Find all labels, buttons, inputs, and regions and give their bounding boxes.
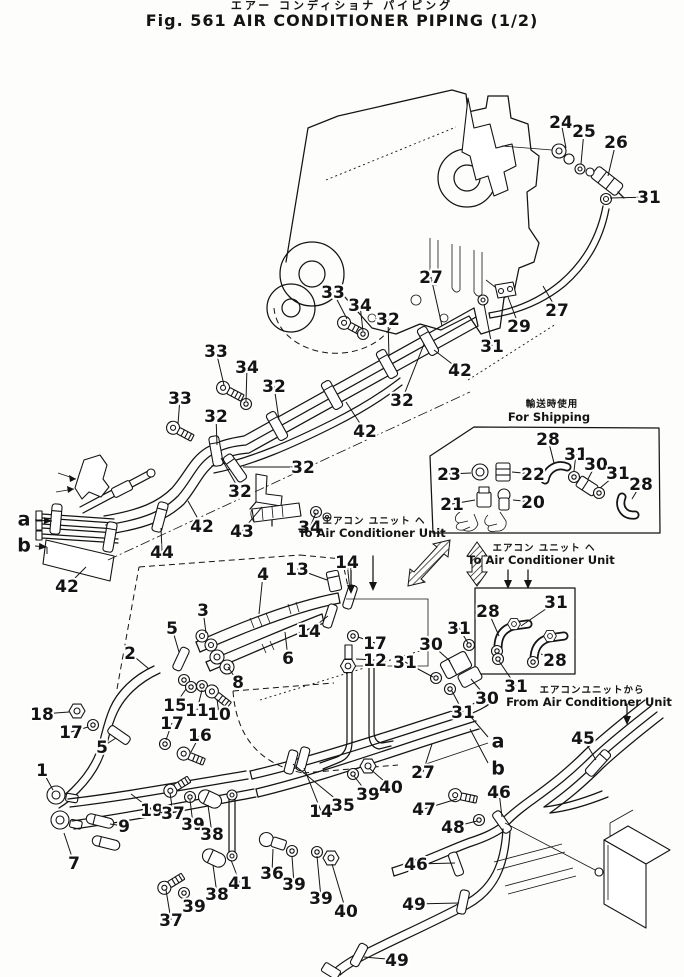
annotation-en: To Air Conditioner Unit xyxy=(298,526,446,540)
callout-30: 30 xyxy=(471,679,499,709)
part-number: 13 xyxy=(285,560,309,580)
part-number: 21 xyxy=(440,495,464,515)
part-number: 39 xyxy=(282,875,306,895)
callout-8: 8 xyxy=(228,667,244,693)
main-pipe-bundle-42 xyxy=(104,308,478,534)
part-number: 42 xyxy=(190,517,214,537)
callout-39: 39 xyxy=(354,776,380,805)
callout-40: 40 xyxy=(332,864,358,922)
annotation-jp: 輸送時使用 xyxy=(526,398,579,410)
part-number: 31 xyxy=(447,619,471,639)
callout-48: 48 xyxy=(441,818,477,838)
part-number: 10 xyxy=(207,705,231,725)
callout-1: 1 xyxy=(36,761,53,790)
part-number: 30 xyxy=(584,455,608,475)
callout-23: 23 xyxy=(437,465,471,485)
part-number: 28 xyxy=(476,602,500,622)
compressor-fittings-24-26 xyxy=(502,144,624,205)
part-number: 31 xyxy=(637,188,661,208)
part-number: 39 xyxy=(356,785,380,805)
callout-38: 38 xyxy=(205,865,229,905)
callout-25: 25 xyxy=(572,122,596,164)
part-number: 2 xyxy=(124,644,136,664)
part-number: 35 xyxy=(331,796,355,816)
machine-rod-part xyxy=(56,455,155,513)
part-number: 48 xyxy=(441,818,465,838)
part-number: 33 xyxy=(321,283,345,303)
callout-21: 21 xyxy=(440,495,475,515)
view-letter: a xyxy=(18,509,31,531)
part-number: 7 xyxy=(68,854,80,874)
part-number: 28 xyxy=(536,430,560,450)
callout-19: 19 xyxy=(131,794,164,821)
part-number: 38 xyxy=(205,885,229,905)
callout-17: 17 xyxy=(59,723,88,743)
callout-31: 31 xyxy=(393,653,433,677)
callout-38: 38 xyxy=(200,805,224,845)
callout-14: 14 xyxy=(297,616,328,642)
part-number: 27 xyxy=(419,268,443,288)
part-number: 9 xyxy=(118,817,130,837)
engine-block xyxy=(267,90,539,353)
part-number: 34 xyxy=(348,296,372,316)
part-number: 31 xyxy=(480,337,504,357)
callout-39: 39 xyxy=(282,856,306,895)
part-number: 3 xyxy=(197,601,209,621)
callout-43: 43 xyxy=(230,507,262,542)
part-number: 22 xyxy=(521,465,545,485)
callout-20: 20 xyxy=(513,493,545,513)
callout-5: 5 xyxy=(166,619,179,652)
annotation-en: For Shipping xyxy=(508,410,590,424)
part-number: 12 xyxy=(363,651,387,671)
part-number: 42 xyxy=(55,577,79,597)
part-number: 47 xyxy=(412,800,436,820)
callout-42: 42 xyxy=(434,350,472,381)
callout-42: 42 xyxy=(188,501,214,537)
pipe-2-and-elbows xyxy=(47,666,256,851)
callout-47: 47 xyxy=(412,799,457,820)
callout-2: 2 xyxy=(124,644,149,669)
part-number: 6 xyxy=(282,649,294,669)
part-number: 49 xyxy=(385,951,409,971)
part-number: 42 xyxy=(353,422,377,442)
part-number: 40 xyxy=(379,778,403,798)
callout-30: 30 xyxy=(419,635,450,661)
view-letter: b xyxy=(17,535,31,557)
parts-diagram-page: エアー コンディショナ パイピング Fig. 561 AIR CONDITION… xyxy=(0,0,684,977)
callout-49: 49 xyxy=(364,951,409,971)
callout-39: 39 xyxy=(182,897,206,917)
part-number: 14 xyxy=(335,553,359,573)
part-number: 32 xyxy=(390,391,414,411)
callout-22: 22 xyxy=(512,465,545,485)
fitting-cluster-center xyxy=(69,630,359,768)
callout-28: 28 xyxy=(476,602,500,636)
callout-30: 30 xyxy=(584,455,608,479)
part-number: 28 xyxy=(543,651,567,671)
part-number: 32 xyxy=(228,482,252,502)
callout-33: 33 xyxy=(168,389,192,424)
part-number: 33 xyxy=(204,342,228,362)
bracket-43 xyxy=(250,474,301,526)
part-number: 32 xyxy=(376,310,400,330)
part-number: 41 xyxy=(228,874,252,894)
figure-title: エアー コンディショナ パイピング Fig. 561 AIR CONDITION… xyxy=(0,0,684,29)
callout-27: 27 xyxy=(419,268,443,326)
part-number: 42 xyxy=(448,361,472,381)
annotation-en: From Air Conditioner Unit xyxy=(506,695,672,709)
callout-31: 31 xyxy=(499,661,528,697)
annotation-from-ac-unit: エアコンユニットからFrom Air Conditioner Unit xyxy=(506,685,672,709)
part-number: 40 xyxy=(334,902,358,922)
part-number: 5 xyxy=(96,738,108,758)
callout-13: 13 xyxy=(285,560,327,580)
part-number: 49 xyxy=(402,895,426,915)
callout-33: 33 xyxy=(204,342,228,385)
part-number: 23 xyxy=(437,465,461,485)
callout-18: 18 xyxy=(30,705,69,725)
callout-32: 32 xyxy=(390,344,424,411)
part-number: 17 xyxy=(160,714,184,734)
view-label-a: a xyxy=(18,509,52,531)
callout-42: 42 xyxy=(346,402,377,442)
part-number: 32 xyxy=(204,407,228,427)
part-number: 18 xyxy=(30,705,54,725)
part-number: 46 xyxy=(404,855,428,875)
part-number: 31 xyxy=(544,593,568,613)
view-letter: b xyxy=(491,758,505,780)
part-number: 1 xyxy=(36,761,48,781)
callout-31: 31 xyxy=(521,593,568,626)
callout-12: 12 xyxy=(356,651,387,671)
annotation-en: To Air Conditioner Unit xyxy=(467,553,615,567)
part-number: 20 xyxy=(521,493,545,513)
part-number: 45 xyxy=(571,729,595,749)
pipe-27-upper xyxy=(478,206,609,318)
callout-33: 33 xyxy=(321,283,347,319)
part-number: 5 xyxy=(166,619,178,639)
part-number: 44 xyxy=(150,543,174,563)
part-number: 24 xyxy=(549,113,573,133)
callout-36: 36 xyxy=(260,849,284,884)
callout-7: 7 xyxy=(64,833,80,874)
part-number: 14 xyxy=(297,622,321,642)
part-number: 17 xyxy=(59,723,83,743)
callout-24: 24 xyxy=(549,113,573,148)
part-number: 32 xyxy=(291,458,315,478)
part-number: 26 xyxy=(604,133,628,153)
part-number: 39 xyxy=(309,889,333,909)
callout-17: 17 xyxy=(160,714,184,740)
part-number: 15 xyxy=(163,696,187,716)
part-number: 38 xyxy=(200,825,224,845)
part-number: 25 xyxy=(572,122,596,142)
annotation-to-ac-unit-right: エアコン ユニット ヘTo Air Conditioner Unit xyxy=(467,543,615,567)
callout-26: 26 xyxy=(604,133,628,176)
part-number: 34 xyxy=(235,358,259,378)
callout-11: 11 xyxy=(185,690,209,721)
part-number: 27 xyxy=(411,763,435,783)
part-number: 37 xyxy=(159,911,183,931)
part-number: 28 xyxy=(629,475,653,495)
part-number: 27 xyxy=(545,301,569,321)
part-number: 30 xyxy=(419,635,443,655)
callout-32: 32 xyxy=(243,458,315,478)
callout-15: 15 xyxy=(163,689,187,716)
part-number: 46 xyxy=(487,783,511,803)
callout-28: 28 xyxy=(541,651,567,671)
part-number: 32 xyxy=(262,377,286,397)
figure-title-en: Fig. 561 AIR CONDITIONER PIPING (1/2) xyxy=(0,12,684,29)
callout-28: 28 xyxy=(629,475,653,499)
annotation-for-shipping: 輸送時使用For Shipping xyxy=(508,398,590,424)
diagram-canvas: 2425263127292731423334323242333432333232… xyxy=(0,0,684,977)
part-number: 31 xyxy=(451,703,475,723)
part-number: 16 xyxy=(188,726,212,746)
view-label-line xyxy=(471,717,488,737)
callout-46: 46 xyxy=(404,855,455,875)
callout-28: 28 xyxy=(536,430,560,463)
callout-29: 29 xyxy=(507,297,531,337)
part-number: 36 xyxy=(260,864,284,884)
part-number: 31 xyxy=(504,677,528,697)
view-letter: a xyxy=(492,731,505,753)
part-number: 39 xyxy=(182,897,206,917)
callout-44: 44 xyxy=(150,528,174,563)
part-number: 31 xyxy=(606,464,630,484)
part-number: 31 xyxy=(393,653,417,673)
callout-41: 41 xyxy=(228,860,252,894)
part-number: 4 xyxy=(257,565,269,585)
callout-5: 5 xyxy=(96,738,116,758)
condenser-box xyxy=(494,810,670,928)
part-number: 8 xyxy=(232,673,244,693)
callout-16: 16 xyxy=(188,726,212,752)
part-number: 33 xyxy=(168,389,192,409)
callout-4: 4 xyxy=(257,565,269,614)
callout-31: 31 xyxy=(451,691,475,723)
callout-49: 49 xyxy=(402,895,459,915)
part-number: 29 xyxy=(507,317,531,337)
part-number: 43 xyxy=(230,522,254,542)
part-number: 11 xyxy=(185,701,209,721)
part-number: 14 xyxy=(309,802,333,822)
callout-3: 3 xyxy=(197,601,209,633)
part-number: 30 xyxy=(475,689,499,709)
